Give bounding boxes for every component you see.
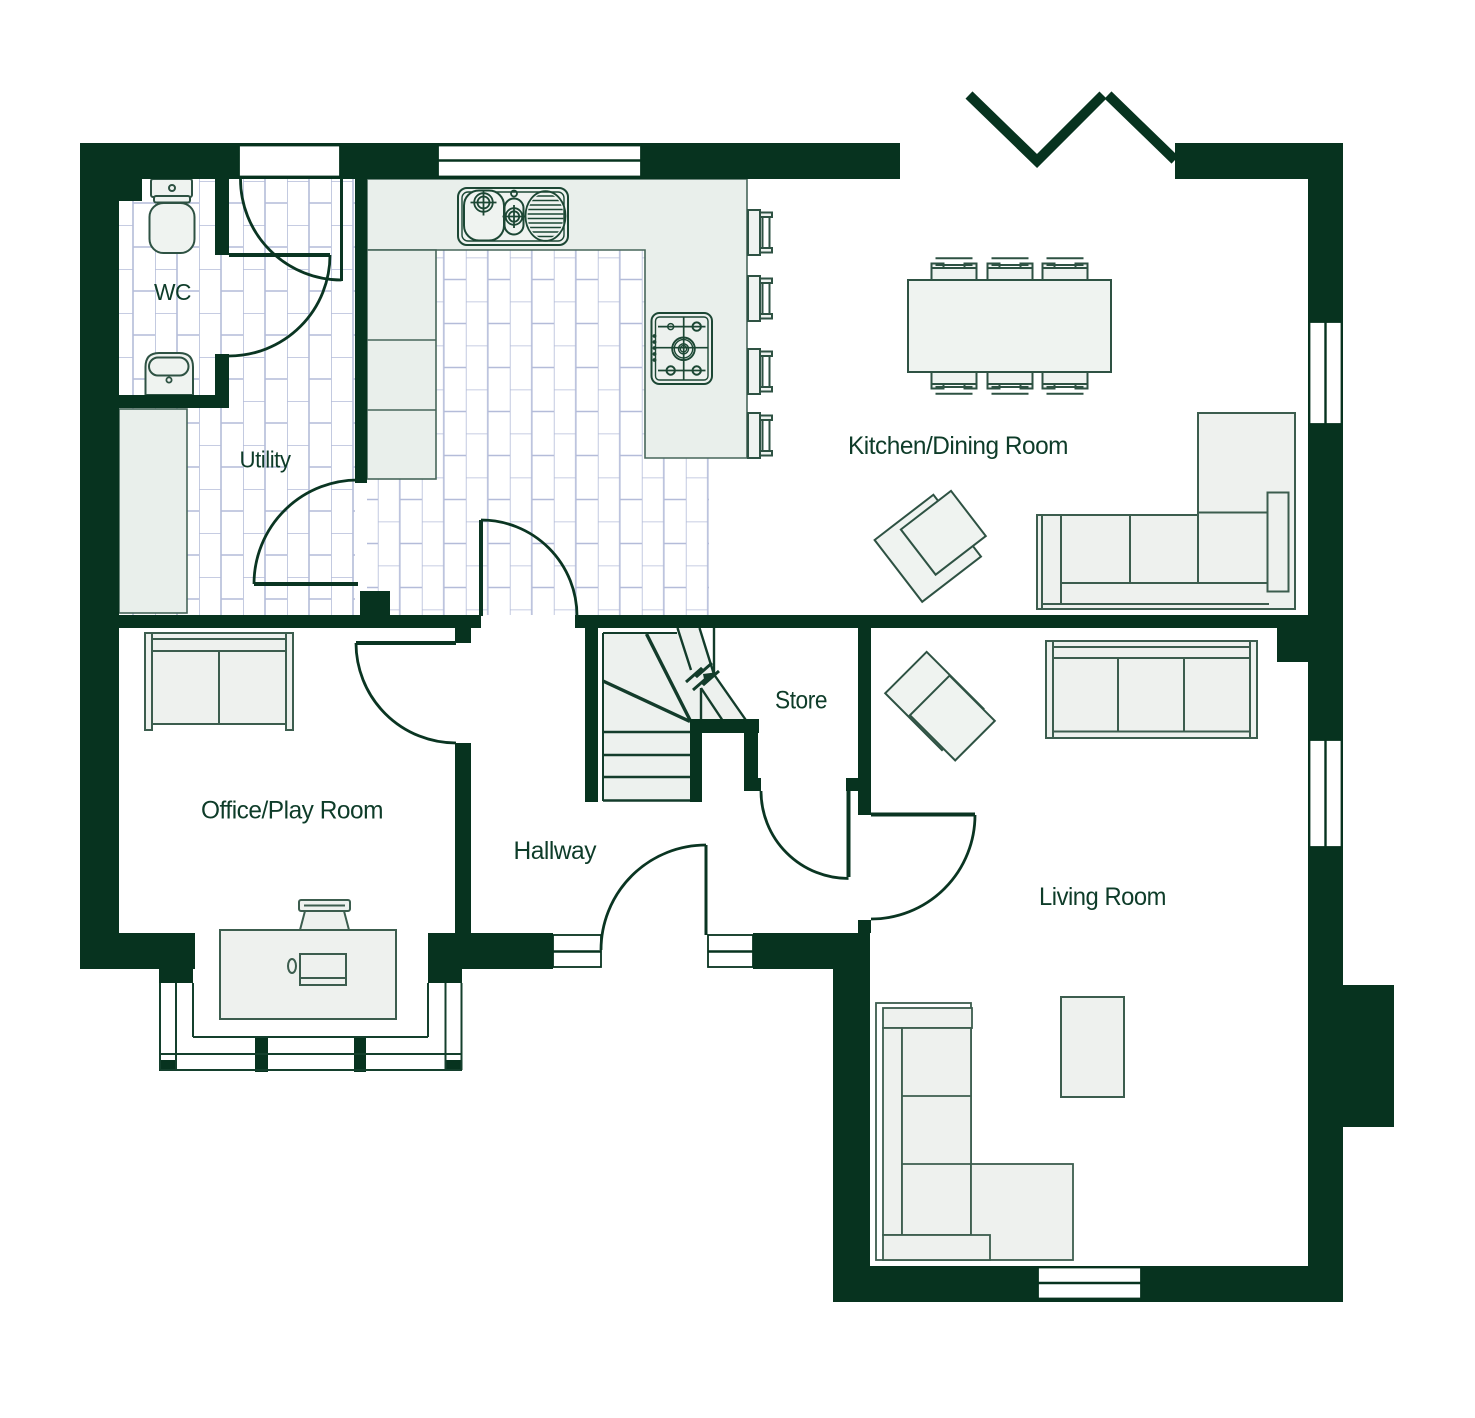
- svg-text:Utility: Utility: [240, 447, 292, 473]
- svg-text:Store: Store: [775, 687, 827, 715]
- svg-text:Office/Play Room: Office/Play Room: [201, 797, 383, 825]
- svg-text:WC: WC: [154, 279, 191, 305]
- svg-text:Living Room: Living Room: [1039, 883, 1166, 911]
- svg-text:Kitchen/Dining Room: Kitchen/Dining Room: [848, 432, 1068, 460]
- svg-text:Hallway: Hallway: [514, 837, 597, 865]
